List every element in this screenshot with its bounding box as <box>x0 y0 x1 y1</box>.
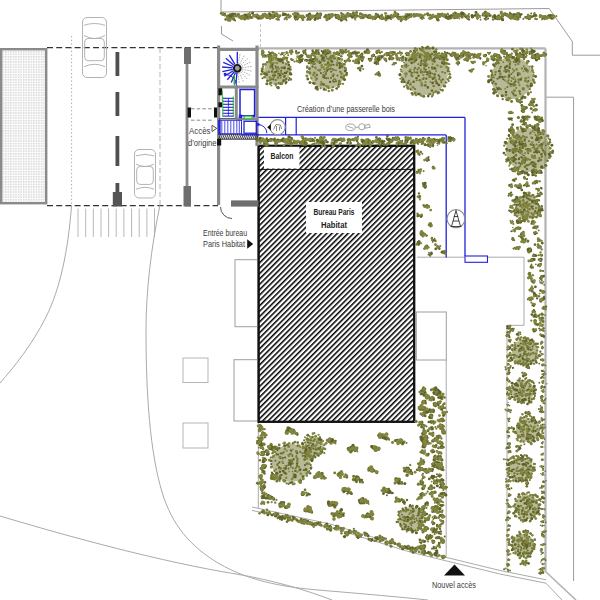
svg-text:Paris Habitat: Paris Habitat <box>203 239 245 249</box>
svg-text:Balcon: Balcon <box>271 150 294 161</box>
svg-text:Création d’une passerelle bois: Création d’une passerelle bois <box>297 104 395 114</box>
svg-text:d’origine: d’origine <box>188 138 217 148</box>
svg-text:Bureau Paris: Bureau Paris <box>314 206 355 217</box>
svg-text:Habitat: Habitat <box>321 219 348 230</box>
svg-text:Accès: Accès <box>189 126 211 136</box>
svg-text:Nouvel accès: Nouvel accès <box>432 580 476 590</box>
svg-text:Entrée bureau: Entrée bureau <box>203 228 247 238</box>
